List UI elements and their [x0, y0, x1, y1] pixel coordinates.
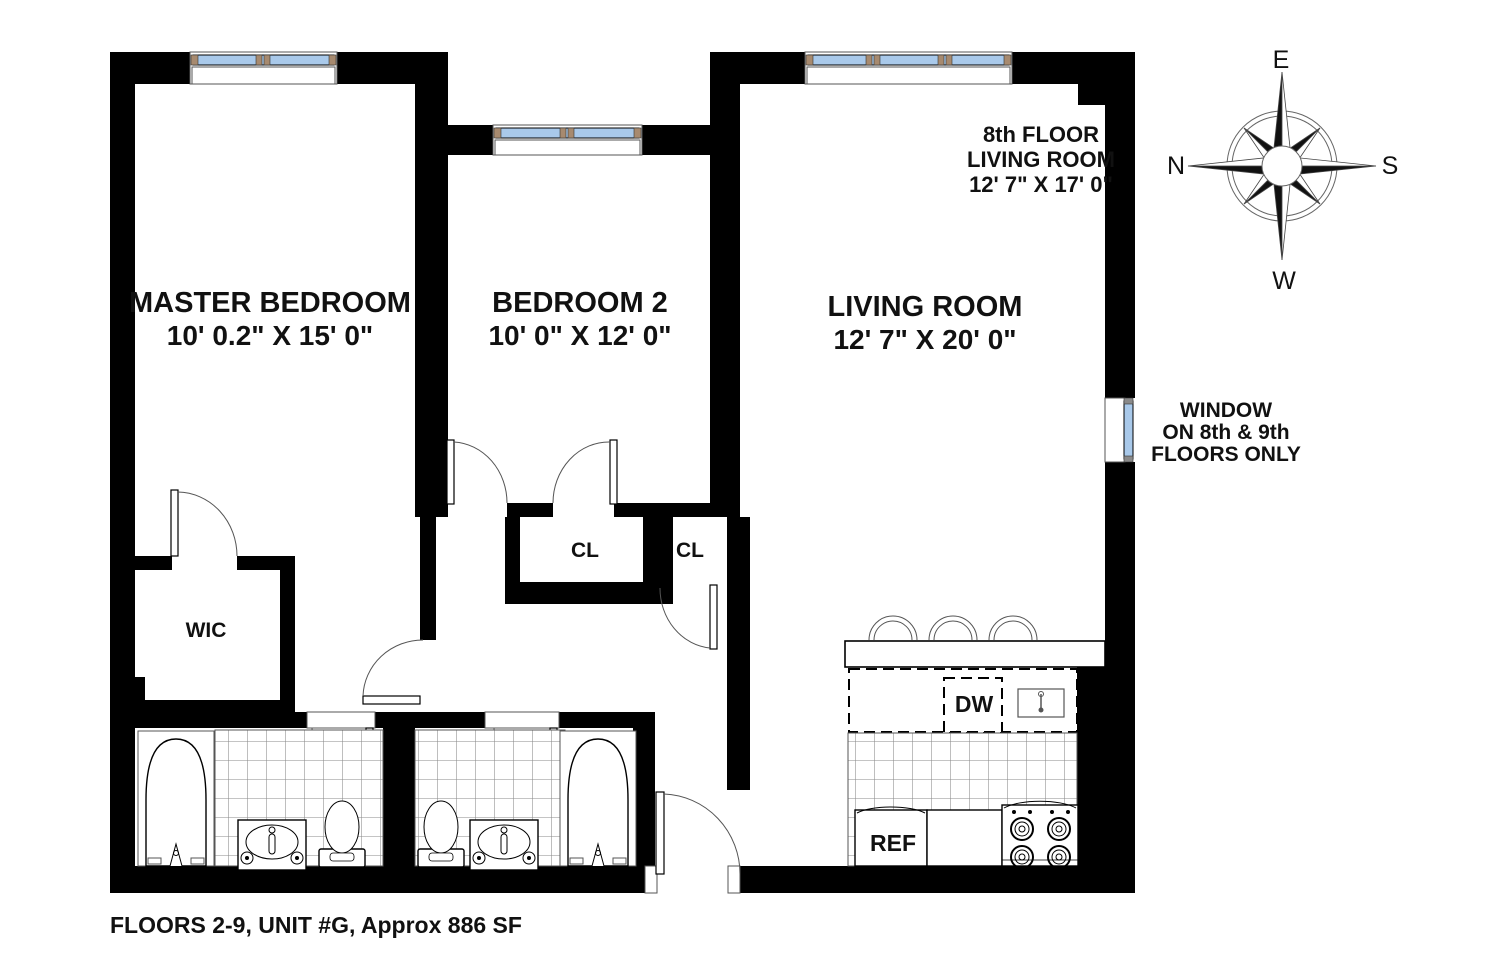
master-bedroom-title: MASTER BEDROOM — [129, 287, 411, 319]
compass-hub — [1262, 146, 1302, 186]
wall-between-closets — [643, 517, 673, 582]
refrigerator-label: REF — [870, 830, 916, 856]
bathtub-2 — [560, 731, 636, 866]
stove — [1002, 801, 1078, 868]
wall-right-exterior-lower — [1105, 462, 1135, 893]
wall-wic-right — [280, 556, 295, 712]
bedroom2-window — [493, 125, 642, 155]
wall-closet1-bottom — [505, 582, 673, 604]
wall-top-master-left — [110, 52, 192, 84]
window-note-line3: FLOORS ONLY — [1151, 443, 1301, 466]
closet2-label: CL — [676, 539, 704, 562]
wall-master-hall-partition — [420, 517, 436, 640]
bathroom2 — [415, 730, 636, 870]
wall-bedroom2-bottom-right — [614, 503, 740, 517]
wall-bottom-left — [110, 866, 655, 893]
sink-vanity-1 — [238, 820, 306, 870]
wic-door — [171, 490, 237, 556]
wall-wic-left-pier — [110, 677, 145, 703]
living-room-window — [805, 52, 1012, 84]
closet1-label: CL — [571, 539, 599, 562]
windows — [190, 52, 1133, 462]
bar-stool-1 — [869, 616, 917, 640]
window-note-line1: WINDOW — [1180, 399, 1272, 422]
wall-top-bedroom2-left — [448, 125, 495, 155]
dishwasher-label: DW — [955, 691, 994, 717]
bar-stool-3 — [989, 616, 1037, 640]
kitchen-base-counter — [927, 810, 1002, 866]
living-room-dims: 12' 7" X 20' 0" — [833, 324, 1016, 355]
bathtub-1 — [138, 731, 214, 866]
bedroom2-title: BEDROOM 2 — [492, 287, 668, 319]
floor-plan-page: E S W N MASTER BEDROOM 10' 0.2" X 15' 0"… — [0, 0, 1500, 957]
window-note-line2: ON 8th & 9th — [1162, 421, 1289, 444]
wall-wic-top-right — [237, 556, 282, 570]
floor-plan-svg: E S W N MASTER BEDROOM 10' 0.2" X 15' 0"… — [0, 0, 1500, 957]
wall-bottom-right — [740, 866, 1135, 893]
compass-rose: E S W N — [1167, 46, 1398, 295]
wall-kitchen-shaft — [1077, 667, 1105, 866]
living-room-title: LIVING ROOM — [828, 291, 1023, 323]
eighth-floor-note-line3: 12' 7" X 17' 0" — [969, 172, 1113, 197]
wall-bedroom2-bottom-mid — [507, 503, 553, 517]
master-hall-door — [363, 640, 423, 704]
eighth-floor-note-line2: LIVING ROOM — [967, 147, 1115, 172]
eighth-floor-note-line1: 8th FLOOR — [983, 122, 1099, 147]
bedroom2-closet-door — [553, 440, 617, 504]
entry-door — [645, 792, 740, 893]
wall-bedroom2-living — [710, 84, 740, 517]
kitchen-sink — [1018, 689, 1064, 717]
wall-between-bathrooms — [383, 716, 415, 866]
wall-foyer-living — [727, 517, 750, 790]
wic-label: WIC — [186, 619, 227, 642]
breakfast-bar-counter — [845, 641, 1105, 667]
sink-vanity-2 — [470, 820, 538, 870]
footer-caption: FLOORS 2-9, UNIT #G, Approx 886 SF — [110, 912, 522, 938]
compass-label-east: E — [1273, 46, 1290, 74]
wall-right-exterior-upper — [1105, 52, 1135, 398]
bedroom2-dims: 10' 0" X 12' 0" — [488, 320, 671, 351]
wall-closet1-left — [505, 517, 520, 582]
compass-label-west: W — [1272, 267, 1296, 295]
wall-wic-bottom — [110, 700, 293, 728]
bar-stool-2 — [929, 616, 977, 640]
bathroom1 — [138, 730, 383, 870]
bedroom2-entry-door — [447, 440, 507, 504]
compass-label-south: S — [1382, 152, 1399, 180]
wall-left-exterior — [110, 52, 135, 893]
master-bedroom-window — [190, 52, 337, 84]
wall-wic-top-left — [110, 556, 172, 570]
compass-label-north: N — [1167, 152, 1185, 180]
wall-top-living-left — [710, 52, 805, 84]
living-room-side-window — [1105, 398, 1133, 462]
master-bedroom-dims: 10' 0.2" X 15' 0" — [167, 320, 373, 351]
wall-master-bedroom2 — [415, 52, 448, 517]
